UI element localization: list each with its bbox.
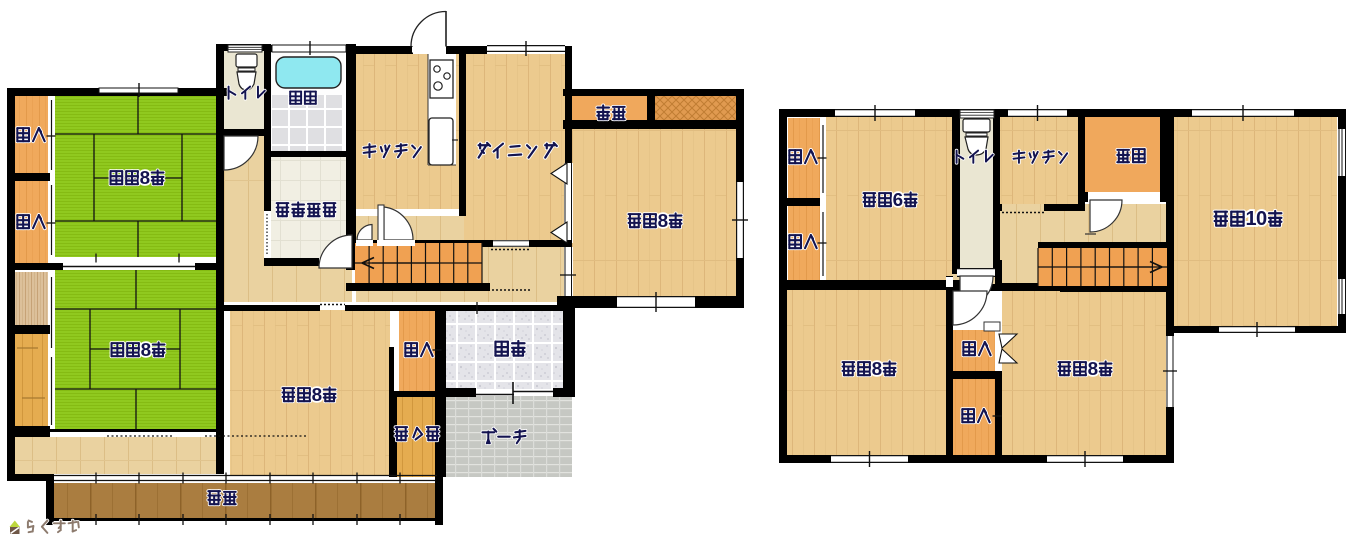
svg-text:8: 8 xyxy=(312,384,323,405)
svg-text:0: 0 xyxy=(1256,208,1267,230)
svg-text:8: 8 xyxy=(872,358,883,379)
svg-text:1: 1 xyxy=(1245,208,1256,230)
svg-text:8: 8 xyxy=(1088,358,1099,379)
svg-text:8: 8 xyxy=(140,167,151,188)
svg-text:8: 8 xyxy=(658,210,669,231)
svg-text:6: 6 xyxy=(893,189,904,210)
svg-text:8: 8 xyxy=(141,339,152,360)
